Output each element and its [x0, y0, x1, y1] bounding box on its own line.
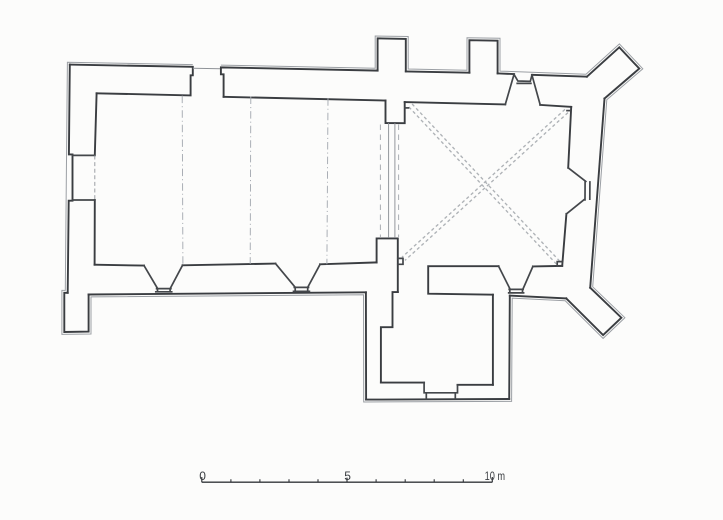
svg-text:0: 0: [199, 469, 206, 483]
svg-text:10 m: 10 m: [485, 469, 506, 483]
svg-text:5: 5: [344, 469, 351, 483]
